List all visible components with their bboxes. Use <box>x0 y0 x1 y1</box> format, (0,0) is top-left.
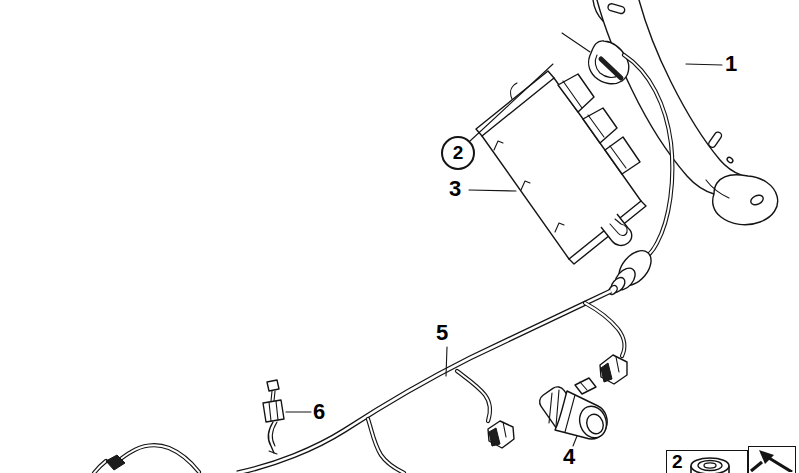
parts-diagram-page: { "figure": { "kind": "exploded-parts-li… <box>0 0 799 473</box>
legend-box-item-2[interactable]: 2 <box>666 450 748 473</box>
legend-box-reference[interactable] <box>748 446 796 473</box>
cable-tie-drawing <box>263 380 284 454</box>
harness-loop-drawing <box>94 445 199 473</box>
connector-plug-1 <box>488 421 514 448</box>
arrow-icon <box>749 447 795 472</box>
harness-trunk <box>237 291 611 473</box>
leader-3 <box>469 190 516 191</box>
harness-branch-b <box>457 371 514 448</box>
module-connector-drawing <box>562 33 629 84</box>
callout-2[interactable]: 2 <box>441 136 475 170</box>
harness-branch-c <box>585 303 627 384</box>
nut-icon <box>685 453 735 473</box>
connector-plug-2 <box>600 355 627 384</box>
bracket-small-hole <box>726 156 734 163</box>
harness-branch-a <box>368 419 404 473</box>
callout-3[interactable]: 3 <box>449 178 461 200</box>
pdc-sensor-drawing <box>536 378 610 441</box>
bracket-mid-slot <box>707 131 722 149</box>
callout-2-number: 2 <box>453 142 464 164</box>
callout-4[interactable]: 4 <box>563 446 575 468</box>
callout-5[interactable]: 5 <box>436 322 448 344</box>
control-module-drawing <box>476 71 646 264</box>
leader-1 <box>686 64 722 65</box>
legend-item-number: 2 <box>667 451 685 472</box>
bracket-top-slot <box>607 3 625 14</box>
callout-1[interactable]: 1 <box>725 53 737 75</box>
callout-6[interactable]: 6 <box>313 401 325 423</box>
diagram-canvas <box>0 0 799 473</box>
